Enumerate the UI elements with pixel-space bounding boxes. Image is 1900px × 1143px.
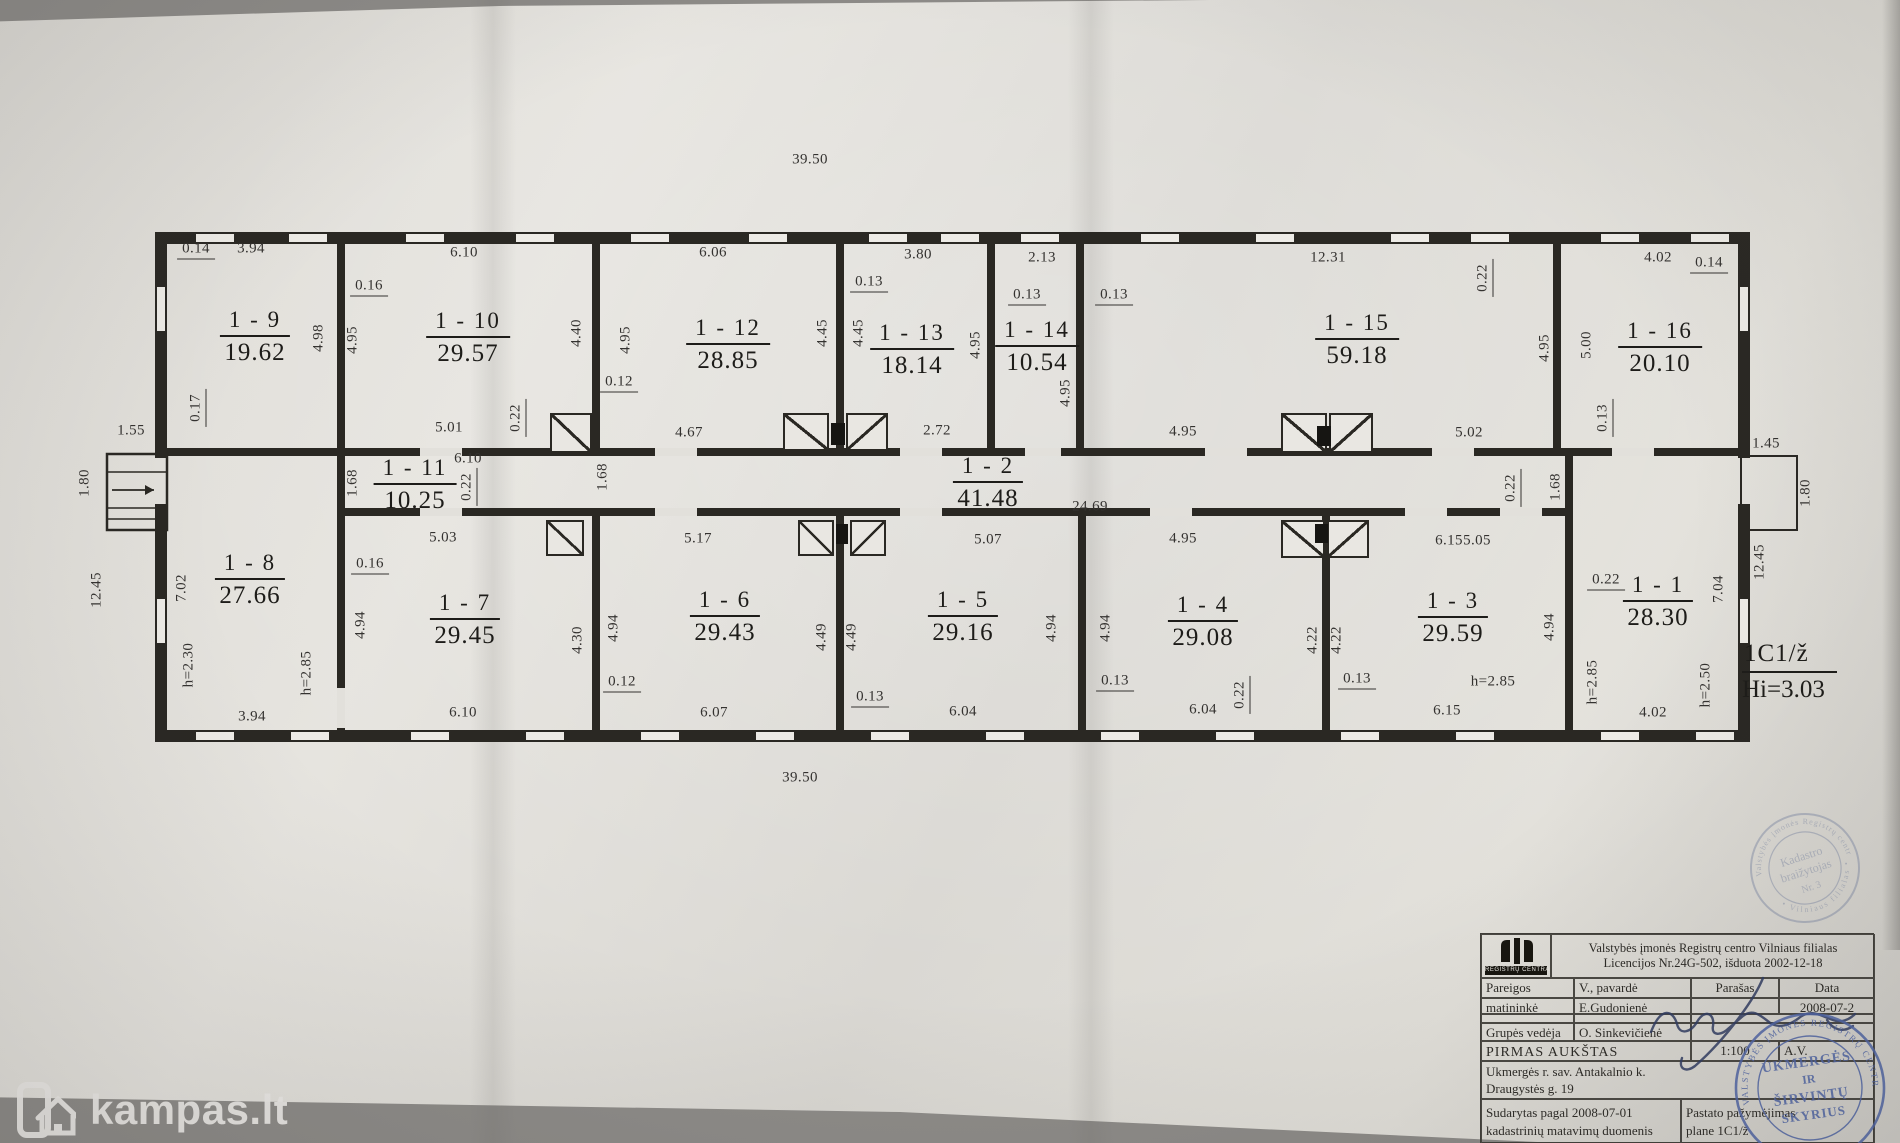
address-cell: Ukmergės r. sav. Antakalnio k. Draugystė… bbox=[1481, 1061, 1875, 1099]
dimension-label: 5.00 bbox=[1579, 331, 1596, 359]
dimension-label: 12.45 bbox=[89, 572, 106, 608]
header-line2: Licencijos Nr.24G-502, išduota 2002-12-1… bbox=[1556, 956, 1870, 971]
dimension-label: 5.03 bbox=[429, 530, 457, 547]
window bbox=[1600, 731, 1640, 741]
wall bbox=[155, 730, 1750, 742]
room-number: 1 - 5 bbox=[928, 587, 998, 617]
dimension-label: 0.13 bbox=[1096, 673, 1134, 692]
window bbox=[1100, 731, 1140, 741]
room-label-1-10: 1 - 1029.57 bbox=[426, 308, 510, 368]
dimension-label: 0.12 bbox=[603, 674, 641, 693]
room-area: 19.62 bbox=[220, 337, 290, 367]
empty-cell bbox=[1691, 1014, 1875, 1023]
col-header-pareigos: Pareigos bbox=[1481, 978, 1574, 998]
room-label-1-11: 1 - 1110.25 bbox=[374, 455, 457, 515]
room-area: 10.54 bbox=[995, 347, 1079, 377]
dimension-label: 4.67 bbox=[675, 425, 703, 442]
dimension-label: 4.30 bbox=[570, 626, 587, 654]
room-number: 1 - 4 bbox=[1168, 592, 1238, 622]
room-label-1-2: 1 - 241.48 bbox=[953, 453, 1023, 513]
window bbox=[1340, 731, 1380, 741]
dimension-label: 6.04 bbox=[949, 704, 977, 721]
window bbox=[290, 731, 330, 741]
kampas-watermark: kampas.lt bbox=[16, 1082, 288, 1138]
row-vedeja-signature-cell bbox=[1691, 1023, 1875, 1041]
dimension-label: 0.22 bbox=[1587, 572, 1625, 591]
dimension-label: 4.02 bbox=[1639, 705, 1667, 722]
chimney-icon bbox=[798, 520, 834, 556]
room-label-1-12: 1 - 1228.85 bbox=[686, 315, 770, 375]
room-number: 1 - 2 bbox=[953, 453, 1023, 483]
footer-left-line2: kadastrinių matavimų duomenis bbox=[1486, 1122, 1676, 1140]
window bbox=[1390, 233, 1430, 243]
av-label: A.V. bbox=[1779, 1041, 1875, 1061]
chimney-icon bbox=[846, 413, 888, 451]
empty-cell bbox=[1574, 1014, 1691, 1023]
floor-label: PIRMAS AUKŠTAS bbox=[1481, 1041, 1691, 1061]
window bbox=[630, 233, 670, 243]
room-label-1-5: 1 - 529.16 bbox=[928, 587, 998, 647]
room-area: 20.10 bbox=[1618, 348, 1702, 378]
dimension-label: 1.45 bbox=[1752, 436, 1780, 453]
flue-icon bbox=[836, 524, 848, 544]
entrance-porch bbox=[1740, 455, 1798, 531]
door-opening bbox=[1405, 508, 1447, 516]
window bbox=[1739, 598, 1749, 644]
window bbox=[195, 731, 235, 741]
footer-right-line2: plane 1C1/ž bbox=[1686, 1122, 1870, 1140]
dimension-label: 4.94 bbox=[1542, 613, 1559, 641]
dimension-label: 0.13 bbox=[1595, 399, 1614, 437]
door-opening bbox=[1432, 448, 1474, 456]
window bbox=[870, 731, 910, 741]
dimension-label: 4.94 bbox=[1044, 614, 1061, 642]
dimension-label: 4.95 bbox=[345, 326, 362, 354]
door-opening bbox=[900, 508, 942, 516]
dimension-label: 5.17 bbox=[684, 531, 712, 548]
room-label-1-13: 1 - 1318.14 bbox=[870, 320, 954, 380]
window bbox=[748, 233, 788, 243]
room-label-1-8: 1 - 827.66 bbox=[215, 550, 285, 610]
header-line1: Valstybės įmonės Registrų centro Vilniau… bbox=[1556, 941, 1870, 956]
dimension-label: 4.95 bbox=[1058, 379, 1075, 407]
window bbox=[1255, 233, 1295, 243]
dimension-label: 3.94 bbox=[238, 709, 266, 726]
dimension-label: 0.13 bbox=[850, 274, 888, 293]
room-area: 29.59 bbox=[1418, 618, 1488, 648]
door-opening bbox=[655, 448, 697, 456]
chimney-icon bbox=[1329, 413, 1373, 453]
room-area: 27.66 bbox=[215, 580, 285, 610]
dimension-label: 4.94 bbox=[1098, 614, 1115, 642]
window bbox=[1215, 731, 1255, 741]
dimension-label: 4.02 bbox=[1644, 250, 1672, 267]
col-header-data: Data bbox=[1779, 978, 1875, 998]
window bbox=[1020, 233, 1060, 243]
window bbox=[940, 233, 980, 243]
dimension-label: 4.49 bbox=[844, 623, 861, 651]
dimension-label: 0.22 bbox=[1232, 676, 1251, 714]
room-area: 10.25 bbox=[374, 485, 457, 515]
room-label-1-6: 1 - 629.43 bbox=[690, 587, 760, 647]
door-opening bbox=[1612, 448, 1654, 456]
dimension-label: 4.95 bbox=[1169, 531, 1197, 548]
window bbox=[1695, 731, 1735, 741]
dimension-label: 0.22 bbox=[508, 399, 527, 437]
titleblock-header: Valstybės įmonės Registrų centro Vilniau… bbox=[1551, 934, 1875, 978]
dimension-label: 3.80 bbox=[904, 247, 932, 264]
chimney-icon bbox=[546, 520, 584, 556]
dimension-label: 7.04 bbox=[1711, 575, 1728, 603]
dimension-label: 0.13 bbox=[1008, 287, 1046, 306]
room-label-1-7: 1 - 729.45 bbox=[430, 590, 500, 650]
dimension-label: 0.22 bbox=[1475, 259, 1494, 297]
room-number: 1 - 12 bbox=[686, 315, 770, 345]
dimension-label: 6.10 bbox=[454, 451, 482, 468]
dimension-label: 2.13 bbox=[1028, 250, 1056, 267]
dimension-label: 39.50 bbox=[792, 152, 828, 169]
dimension-label: 1.80 bbox=[77, 469, 94, 497]
room-number: 1 - 7 bbox=[430, 590, 500, 620]
dimension-label: 4.95 bbox=[618, 326, 635, 354]
room-area: 29.08 bbox=[1168, 622, 1238, 652]
door-opening bbox=[1150, 508, 1192, 516]
row-matininke-role: matininkė bbox=[1481, 998, 1574, 1014]
dimension-label: 5.05 bbox=[1463, 533, 1491, 550]
chimney-icon bbox=[783, 413, 829, 451]
address-line2: Draugystės g. 19 bbox=[1486, 1080, 1870, 1097]
dimension-label: 0.14 bbox=[1690, 255, 1728, 274]
dimension-label: h=2.30 bbox=[181, 643, 198, 688]
registru-centras-logo: REGISTRŲ CENTRAS bbox=[1481, 934, 1551, 978]
dimension-label: 0.12 bbox=[600, 374, 638, 393]
door-opening bbox=[1500, 508, 1542, 516]
room-area: 29.43 bbox=[690, 617, 760, 647]
dimension-label: 4.49 bbox=[814, 623, 831, 651]
room-label-1-3: 1 - 329.59 bbox=[1418, 588, 1488, 648]
dimension-label: 1.68 bbox=[345, 469, 362, 497]
room-label-1-4: 1 - 429.08 bbox=[1168, 592, 1238, 652]
window bbox=[288, 233, 328, 243]
room-number: 1 - 14 bbox=[995, 317, 1079, 347]
dimension-label: 4.94 bbox=[353, 611, 370, 639]
door-opening bbox=[337, 688, 345, 728]
footer-left-line1: Sudarytas pagal 2008-07-01 bbox=[1486, 1104, 1676, 1122]
dimension-label: 4.95 bbox=[1537, 334, 1554, 362]
dimension-label: 1.68 bbox=[1548, 473, 1565, 501]
page-edge-shadow bbox=[1882, 0, 1900, 950]
dimension-label: 4.22 bbox=[1305, 626, 1322, 654]
dimension-label: 6.10 bbox=[449, 705, 477, 722]
scale-label: 1:100 bbox=[1691, 1041, 1779, 1061]
door-opening bbox=[900, 448, 942, 456]
title-block: REGISTRŲ CENTRAS Valstybės įmonės Regist… bbox=[1480, 933, 1874, 1143]
room-label-1-9: 1 - 919.62 bbox=[220, 307, 290, 367]
dimension-label: 0.22 bbox=[459, 468, 478, 506]
window bbox=[985, 731, 1025, 741]
room-label-1-15: 1 - 1559.18 bbox=[1315, 310, 1399, 370]
dimension-label: 6.10 bbox=[450, 245, 478, 262]
wall bbox=[1078, 516, 1086, 730]
window bbox=[868, 233, 908, 243]
kampas-logo-icon bbox=[16, 1082, 76, 1138]
dimension-label: h=2.85 bbox=[1585, 660, 1602, 705]
dimension-label: 1.55 bbox=[117, 423, 145, 440]
window bbox=[1600, 233, 1640, 243]
dimension-label: h=2.85 bbox=[299, 651, 316, 696]
dimension-label: 0.13 bbox=[1338, 671, 1376, 690]
room-number: 1 - 15 bbox=[1315, 310, 1399, 340]
room-area: 29.45 bbox=[430, 620, 500, 650]
dimension-label: 12.45 bbox=[1752, 544, 1769, 580]
room-area: 29.16 bbox=[928, 617, 998, 647]
room-area: 59.18 bbox=[1315, 340, 1399, 370]
room-number: 1 - 8 bbox=[215, 550, 285, 580]
room-label-1-16: 1 - 1620.10 bbox=[1618, 318, 1702, 378]
building-designation: 1C1/ž Hi=3.03 bbox=[1742, 640, 1837, 704]
window bbox=[156, 598, 166, 644]
room-area: 29.57 bbox=[426, 338, 510, 368]
dimension-label: 0.13 bbox=[1095, 287, 1133, 306]
dimension-label: 5.02 bbox=[1455, 425, 1483, 442]
dimension-label: 4.95 bbox=[968, 331, 985, 359]
logo-caption: REGISTRŲ CENTRAS bbox=[1485, 966, 1547, 975]
window bbox=[410, 731, 450, 741]
window bbox=[1455, 731, 1495, 741]
row-matininke-signature-cell bbox=[1691, 998, 1779, 1014]
dimension-label: 4.95 bbox=[1169, 424, 1197, 441]
wall bbox=[1565, 448, 1573, 730]
chimney-icon bbox=[1327, 520, 1369, 558]
empty-cell bbox=[1481, 1014, 1574, 1023]
dimension-label: 0.16 bbox=[350, 278, 388, 297]
dimension-label: 0.22 bbox=[1503, 469, 1522, 507]
dimension-label: 24.69 bbox=[1072, 499, 1108, 516]
window bbox=[405, 233, 445, 243]
dimension-label: 5.07 bbox=[974, 532, 1002, 549]
room-area: 28.30 bbox=[1623, 602, 1693, 632]
dimension-label: 0.17 bbox=[188, 389, 207, 427]
dimension-label: 6.15 bbox=[1433, 703, 1461, 720]
window bbox=[640, 731, 680, 741]
footer-right-cell: Pastato pažymėjimas plane 1C1/ž bbox=[1681, 1099, 1875, 1143]
building-height: Hi=3.03 bbox=[1742, 673, 1837, 704]
room-number: 1 - 10 bbox=[426, 308, 510, 338]
window bbox=[1690, 233, 1730, 243]
address-line1: Ukmergės r. sav. Antakalnio k. bbox=[1486, 1063, 1870, 1080]
dimension-label: 6.15 bbox=[1435, 533, 1463, 550]
dimension-label: 1.68 bbox=[595, 463, 612, 491]
dimension-label: h=2.50 bbox=[1698, 663, 1715, 708]
row-vedeja-name: O. Sinkevičienė bbox=[1574, 1023, 1691, 1041]
wall bbox=[592, 244, 600, 448]
window bbox=[755, 731, 795, 741]
dimension-label: 3.94 bbox=[237, 241, 265, 258]
wall bbox=[987, 244, 995, 448]
kampas-logo-text: kampas.lt bbox=[90, 1086, 288, 1134]
dimension-label: 6.06 bbox=[699, 245, 727, 262]
door-opening bbox=[155, 458, 167, 504]
room-label-1-14: 1 - 1410.54 bbox=[995, 317, 1079, 377]
dimension-label: 0.14 bbox=[177, 241, 215, 260]
scanned-floor-plan-photo: 1 - 919.621 - 1029.571 - 1228.851 - 1318… bbox=[0, 0, 1900, 1143]
room-area: 28.85 bbox=[686, 345, 770, 375]
footer-left-cell: Sudarytas pagal 2008-07-01 kadastrinių m… bbox=[1481, 1099, 1681, 1143]
room-number: 1 - 13 bbox=[870, 320, 954, 350]
window bbox=[1470, 233, 1510, 243]
dimension-label: 12.31 bbox=[1310, 250, 1346, 267]
building-code: 1C1/ž bbox=[1742, 640, 1837, 673]
room-number: 1 - 1 bbox=[1623, 572, 1693, 602]
dimension-label: 6.07 bbox=[700, 705, 728, 722]
dimension-label: 4.98 bbox=[311, 324, 328, 352]
dimension-label: 4.40 bbox=[569, 319, 586, 347]
window bbox=[1140, 233, 1180, 243]
door-opening bbox=[1025, 448, 1061, 456]
row-matininke-date: 2008-07-2 bbox=[1779, 998, 1875, 1014]
window bbox=[525, 731, 565, 741]
registru-centras-icon bbox=[1495, 938, 1539, 964]
col-header-pavarde: V., pavardė bbox=[1574, 978, 1691, 998]
chimney-icon bbox=[550, 413, 592, 453]
window bbox=[1739, 286, 1749, 332]
col-header-parasas: Parašas bbox=[1691, 978, 1779, 998]
dimension-label: 6.04 bbox=[1189, 702, 1217, 719]
room-number: 1 - 11 bbox=[374, 455, 457, 485]
room-number: 1 - 3 bbox=[1418, 588, 1488, 618]
flue-icon bbox=[1317, 426, 1331, 446]
row-vedeja-role: Grupės vedėja bbox=[1481, 1023, 1574, 1041]
row-matininke-name: E.Gudonienė bbox=[1574, 998, 1691, 1014]
dimension-label: 4.45 bbox=[851, 319, 868, 347]
window bbox=[156, 286, 166, 332]
dimension-label: 2.72 bbox=[923, 423, 951, 440]
wall bbox=[1553, 244, 1561, 448]
dimension-label: 4.45 bbox=[815, 319, 832, 347]
dimension-label: h=2.85 bbox=[1471, 674, 1516, 691]
room-label-1-1: 1 - 128.30 bbox=[1623, 572, 1693, 632]
room-number: 1 - 9 bbox=[220, 307, 290, 337]
window bbox=[515, 233, 555, 243]
room-area: 18.14 bbox=[870, 350, 954, 380]
chimney-icon bbox=[850, 520, 886, 556]
room-area: 41.48 bbox=[953, 483, 1023, 513]
dimension-label: 4.22 bbox=[1329, 626, 1346, 654]
footer-right-line1: Pastato pažymėjimas bbox=[1686, 1104, 1870, 1122]
dimension-label: 0.16 bbox=[351, 556, 389, 575]
dimension-label: 39.50 bbox=[782, 770, 818, 787]
dimension-label: 0.13 bbox=[851, 689, 889, 708]
door-opening bbox=[655, 508, 697, 516]
dimension-label: 4.94 bbox=[606, 614, 623, 642]
dimension-label: 1.80 bbox=[1798, 479, 1815, 507]
room-number: 1 - 16 bbox=[1618, 318, 1702, 348]
flue-icon bbox=[831, 423, 845, 445]
room-number: 1 - 6 bbox=[690, 587, 760, 617]
flue-icon bbox=[1315, 524, 1328, 543]
dimension-label: 7.02 bbox=[174, 574, 191, 602]
wall bbox=[592, 516, 600, 730]
wall bbox=[836, 244, 844, 448]
dimension-label: 5.01 bbox=[435, 420, 463, 437]
door-opening bbox=[1205, 448, 1247, 456]
